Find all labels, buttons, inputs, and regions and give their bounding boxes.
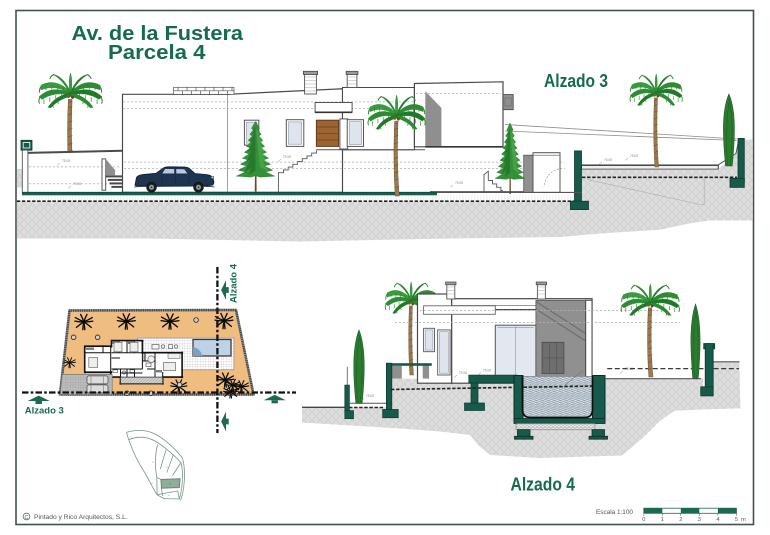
svg-text:1: 1 [661, 517, 664, 523]
svg-text:75.08: 75.08 [604, 158, 612, 162]
svg-text:C: C [25, 515, 29, 521]
svg-text:Alzado 3: Alzado 3 [25, 406, 64, 416]
svg-text:Alzado 3: Alzado 3 [544, 71, 608, 91]
svg-text:4: 4 [716, 517, 719, 523]
svg-text:m: m [741, 517, 746, 523]
svg-text:75.08: 75.08 [73, 182, 81, 186]
svg-text:Alzado 4: Alzado 4 [511, 475, 576, 495]
svg-text:5: 5 [735, 517, 738, 523]
svg-text:75.08: 75.08 [283, 155, 291, 159]
svg-text:Pintado y Rico Arquitectos, S.: Pintado y Rico Arquitectos, S.L. [34, 514, 128, 521]
svg-text:Escala 1:100: Escala 1:100 [596, 509, 633, 516]
svg-text:0: 0 [642, 517, 645, 523]
svg-text:3: 3 [698, 517, 701, 523]
svg-text:75.08: 75.08 [459, 371, 467, 375]
svg-text:75.08: 75.08 [483, 369, 491, 373]
svg-text:2: 2 [679, 517, 682, 523]
svg-text:75.08: 75.08 [455, 181, 463, 185]
svg-text:75.08: 75.08 [630, 154, 638, 158]
svg-text:Alzado 4: Alzado 4 [229, 263, 239, 303]
svg-text:75.08: 75.08 [62, 159, 70, 163]
svg-text:Parcela 4: Parcela 4 [108, 42, 206, 64]
svg-text:75.08: 75.08 [366, 394, 374, 398]
